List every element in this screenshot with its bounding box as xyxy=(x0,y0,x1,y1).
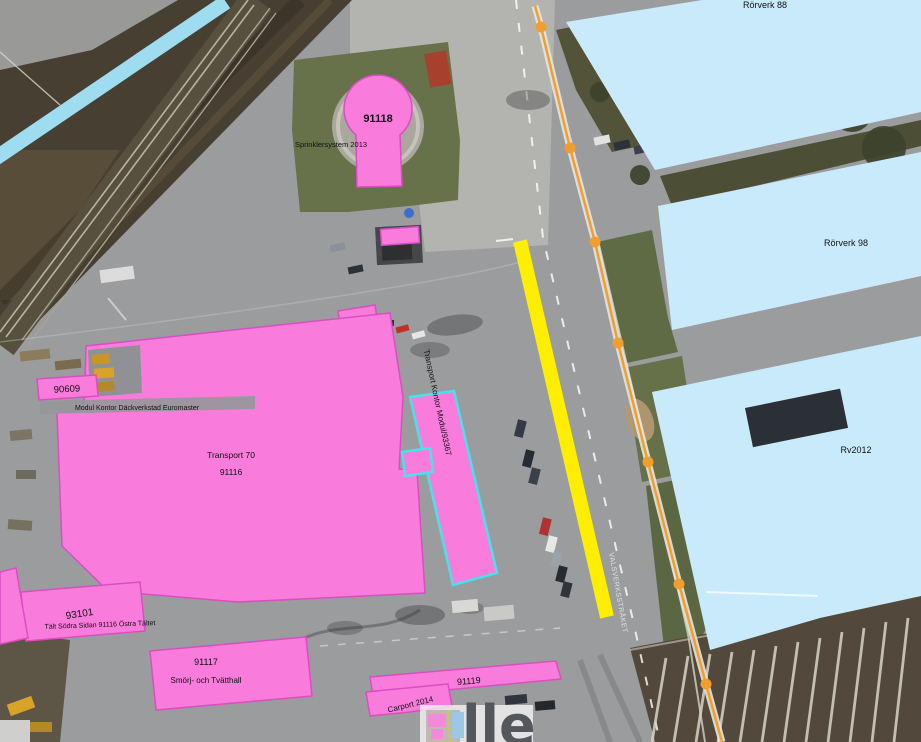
label-rorverk88: Rörverk 88 xyxy=(743,0,787,10)
label-rorverk98: Rörverk 98 xyxy=(824,238,868,248)
label-91119: 91119 xyxy=(456,675,480,687)
label-91117: 91117 xyxy=(194,657,218,667)
map-canvas[interactable]: Rörverk 88 Rörverk 98 Rv2012 91118 Sprin… xyxy=(0,0,921,742)
watermark-logo-text: lle xyxy=(462,694,536,742)
label-smorj: Smörj- och Tvätthall xyxy=(171,676,242,685)
label-90609: 90609 xyxy=(53,383,80,395)
small-pink-shed[interactable] xyxy=(380,227,419,246)
label-91118: 91118 xyxy=(363,113,392,125)
label-rv2012: Rv2012 xyxy=(840,445,871,455)
label-transport70: Transport 70 xyxy=(207,450,255,460)
building-93367-wing[interactable] xyxy=(402,448,433,476)
minimap-thumbnail xyxy=(426,710,464,742)
map-viewport[interactable]: Rörverk 88 Rörverk 98 Rv2012 91118 Sprin… xyxy=(0,0,921,742)
label-sprinkler: Sprinklersystem 2013 xyxy=(295,140,367,149)
label-euromaster: Modul Kontor Däckverkstad Euromaster xyxy=(75,405,200,412)
label-91116: 91116 xyxy=(220,467,243,477)
